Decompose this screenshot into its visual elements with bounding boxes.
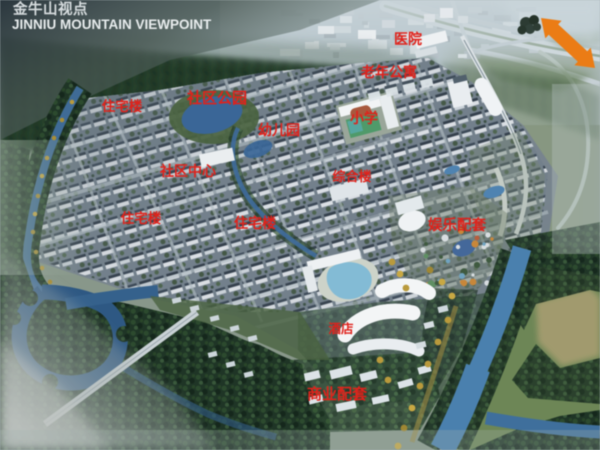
svg-text:住宅楼: 住宅楼 [121, 210, 162, 226]
svg-text:小学: 小学 [350, 110, 378, 126]
svg-text:住宅楼: 住宅楼 [102, 98, 143, 114]
svg-text:综合楼: 综合楼 [332, 169, 371, 184]
svg-text:金牛山视点: 金牛山视点 [12, 0, 88, 18]
svg-text:娱乐配套: 娱乐配套 [428, 216, 486, 234]
svg-text:幼儿园: 幼儿园 [258, 122, 300, 138]
svg-text:社区公园: 社区公园 [186, 89, 247, 107]
svg-text:住宅楼: 住宅楼 [234, 215, 276, 231]
svg-text:社区中心: 社区中心 [159, 163, 216, 179]
svg-text:商业配套: 商业配套 [307, 385, 368, 403]
svg-text:酒店: 酒店 [328, 321, 354, 336]
svg-text:老年公寓: 老年公寓 [361, 64, 417, 80]
svg-text:医院: 医院 [394, 31, 422, 47]
svg-text:JINNIU MOUNTAIN VIEWPOINT: JINNIU MOUNTAIN VIEWPOINT [12, 17, 212, 32]
